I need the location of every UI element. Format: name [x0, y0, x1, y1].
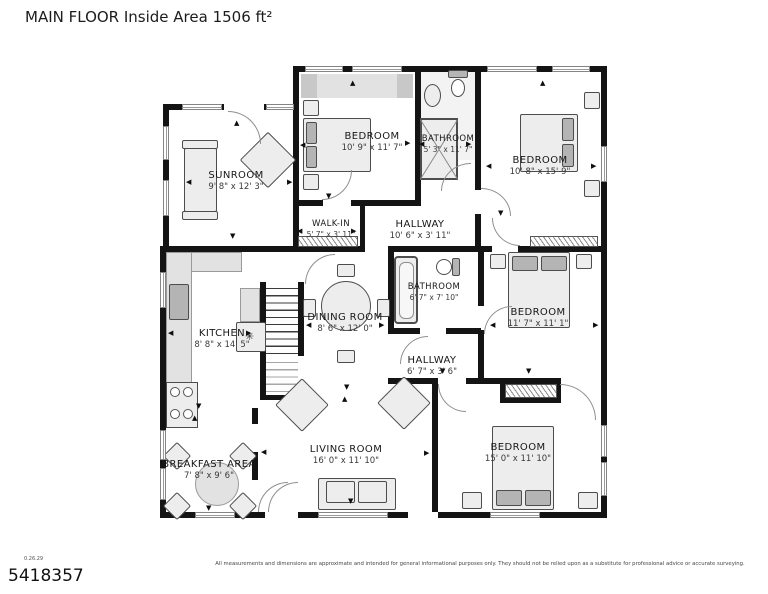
closet-shelf	[397, 74, 413, 98]
window	[182, 104, 222, 110]
version-text: 0.26.29	[24, 556, 43, 562]
room-label-sunroom: SUNROOM 9' 8" x 12' 3"	[176, 169, 296, 193]
direction-arrow-icon	[168, 330, 173, 337]
room-name: WALK-IN	[291, 219, 371, 230]
nightstand	[576, 254, 592, 269]
room-label-bathroom-2: BATHROOM 6' 7" x 7' 10"	[386, 282, 482, 303]
room-label-bedroom-4: BEDROOM 15' 0" x 11' 10"	[458, 441, 578, 465]
direction-arrow-icon	[351, 228, 356, 235]
room-dims: 6' 7" x 7' 10"	[386, 293, 482, 303]
direction-arrow-icon	[230, 233, 235, 240]
room-dims: 7' 8" x 9' 6"	[148, 471, 270, 482]
window	[352, 66, 402, 72]
floorplan-canvas: MAIN FLOOR Inside Area 1506 ft²	[0, 0, 768, 594]
room-name: BEDROOM	[458, 441, 578, 454]
room-label-walk-in: WALK-IN 5' 7" x 3' 11"	[291, 219, 371, 240]
toilet-tank	[448, 70, 468, 78]
door-arc	[228, 111, 261, 144]
window	[318, 512, 388, 518]
pillow	[525, 490, 551, 506]
closet-hatch	[530, 236, 598, 247]
room-name: HALLWAY	[372, 354, 492, 367]
window	[266, 104, 294, 110]
window	[160, 430, 166, 460]
direction-arrow-icon	[490, 322, 495, 329]
closet-shelf	[301, 74, 317, 98]
direction-arrow-icon	[297, 228, 302, 235]
direction-arrow-icon	[419, 141, 424, 148]
door-arc	[560, 384, 596, 420]
wall	[503, 398, 559, 403]
direction-arrow-icon	[424, 450, 429, 457]
direction-arrow-icon	[234, 120, 239, 127]
direction-arrow-icon	[326, 193, 331, 200]
direction-arrow-icon	[186, 179, 191, 186]
nightstand	[303, 100, 319, 116]
door-opening	[224, 104, 264, 110]
wall	[432, 378, 438, 512]
direction-arrow-icon	[498, 210, 503, 217]
room-name: BEDROOM	[480, 154, 600, 167]
direction-arrow-icon	[540, 80, 545, 87]
room-label-hallway-2: HALLWAY 6' 7" x 3' 6"	[372, 354, 492, 378]
door-opening	[265, 512, 298, 518]
nightstand	[490, 254, 506, 269]
room-label-bedroom-3: BEDROOM 11' 7" x 11' 1"	[478, 306, 598, 330]
door-arc	[492, 218, 520, 246]
wall	[388, 246, 481, 252]
pillow	[512, 256, 538, 271]
direction-arrow-icon	[379, 322, 384, 329]
burner	[170, 387, 180, 397]
pillow	[496, 490, 522, 506]
door-arc	[305, 254, 335, 284]
direction-arrow-icon	[196, 403, 201, 410]
room-name: SUNROOM	[176, 169, 296, 182]
pillow	[541, 256, 567, 271]
direction-arrow-icon	[466, 141, 471, 148]
nightstand	[462, 492, 482, 509]
window	[601, 425, 607, 457]
direction-arrow-icon	[344, 384, 349, 391]
window	[305, 66, 343, 72]
room-label-dining-room: DINING ROOM 8' 6" x 12' 0"	[285, 311, 405, 335]
direction-arrow-icon	[261, 449, 266, 456]
room-label-bedroom-2: BEDROOM 10' 8" x 15' 9"	[480, 154, 600, 178]
direction-arrow-icon	[526, 368, 531, 375]
closet-hatch	[505, 384, 557, 398]
chair	[337, 350, 355, 363]
room-label-living-room: LIVING ROOM 16' 0" x 11' 10"	[286, 443, 406, 467]
pillow	[562, 118, 574, 141]
kitchen-sink	[169, 284, 189, 320]
direction-arrow-icon	[206, 505, 211, 512]
nightstand	[303, 174, 319, 190]
room-name: KITCHEN	[162, 327, 282, 340]
direction-arrow-icon	[300, 142, 305, 149]
sofa	[318, 478, 396, 510]
sink	[424, 84, 441, 107]
window	[601, 462, 607, 496]
room-dims: 15' 0" x 11' 10"	[458, 454, 578, 465]
room-label-kitchen: KITCHEN 8' 8" x 14' 5"	[162, 327, 282, 351]
kitchen-counter	[240, 288, 260, 322]
door-arc	[481, 188, 511, 216]
direction-arrow-icon	[246, 330, 251, 337]
room-dims: 5' 7" x 3' 11"	[291, 230, 371, 240]
room-dims: 9' 8" x 12' 3"	[176, 182, 296, 193]
chair	[337, 264, 355, 277]
direction-arrow-icon	[342, 396, 347, 403]
window	[163, 126, 169, 160]
toilet	[436, 259, 452, 275]
page-title: MAIN FLOOR Inside Area 1506 ft²	[25, 8, 272, 26]
disclaimer-text: All measurements and dimensions are appr…	[200, 561, 760, 567]
window	[490, 512, 540, 518]
direction-arrow-icon	[405, 140, 410, 147]
wall	[252, 408, 258, 424]
room-label-bathroom-1: BATHROOM 5' 3" x 11' 7"	[398, 134, 498, 155]
sofa-cushion	[358, 481, 387, 503]
room-dims: 10' 6" x 3' 11"	[360, 231, 480, 242]
room-dims: 16' 0" x 11' 10"	[286, 456, 406, 467]
listing-id: 5418357	[8, 566, 84, 586]
nightstand	[584, 92, 600, 109]
room-dims: 8' 8" x 14' 5"	[162, 340, 282, 351]
window	[160, 272, 166, 308]
room-name: BATHROOM	[398, 134, 498, 145]
room-dims: 8' 6" x 12' 0"	[285, 324, 405, 335]
direction-arrow-icon	[593, 322, 598, 329]
room-dims: 10' 8" x 15' 9"	[480, 167, 600, 178]
burner	[183, 387, 193, 397]
sofa-armrest	[182, 211, 218, 220]
direction-arrow-icon	[591, 163, 596, 170]
direction-arrow-icon	[287, 179, 292, 186]
window	[552, 66, 590, 72]
room-name: BREAKFAST AREA	[148, 458, 270, 471]
room-label-hallway-1: HALLWAY 10' 6" x 3' 11"	[360, 218, 480, 242]
direction-arrow-icon	[306, 322, 311, 329]
direction-arrow-icon	[192, 415, 197, 422]
door-arc	[438, 384, 466, 412]
room-label-breakfast-area: BREAKFAST AREA 7' 8" x 9' 6"	[148, 458, 270, 482]
room-dims: 6' 7" x 3' 6"	[372, 367, 492, 378]
toilet	[451, 79, 465, 97]
burner	[170, 409, 180, 419]
armchair	[377, 376, 431, 430]
room-dims: 11' 7" x 11' 1"	[478, 319, 598, 330]
room-name: DINING ROOM	[285, 311, 405, 324]
room-name: BATHROOM	[386, 282, 482, 293]
window	[601, 146, 607, 182]
direction-arrow-icon	[350, 80, 355, 87]
toilet-tank	[452, 258, 460, 276]
nightstand	[578, 492, 598, 509]
window	[195, 512, 235, 518]
direction-arrow-icon	[348, 498, 353, 505]
window	[163, 180, 169, 216]
wall	[293, 200, 323, 206]
nightstand	[584, 180, 600, 197]
window	[487, 66, 537, 72]
room-name: HALLWAY	[360, 218, 480, 231]
room-name: LIVING ROOM	[286, 443, 406, 456]
room-name: BEDROOM	[478, 306, 598, 319]
direction-arrow-icon	[440, 368, 445, 375]
wall	[446, 328, 481, 334]
door-opening	[408, 512, 438, 518]
direction-arrow-icon	[486, 163, 491, 170]
